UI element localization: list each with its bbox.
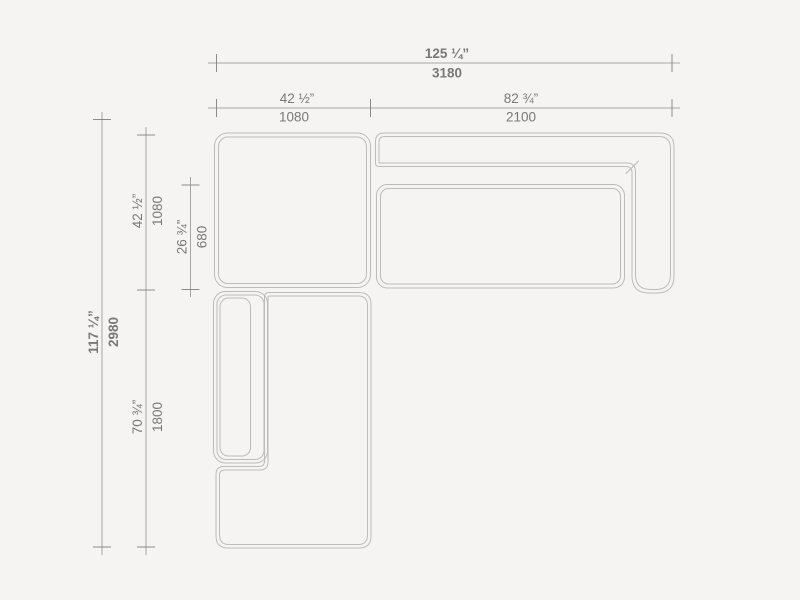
dim-seat-depth-inches: 26 ¾” [175,220,190,255]
dim-left-module-depth-inches: 42 ½” [130,194,145,229]
dim-module-widths: 42 ½” 1080 82 ¾” 2100 [208,91,680,125]
dim-left-module-depth-mm: 1080 [150,196,165,226]
dim-chaise-length-inches: 70 ¾” [130,400,145,435]
chaise-armrest-cushion [220,298,251,456]
left-module [215,133,371,288]
dim-overall-width-mm: 3180 [432,66,462,81]
chaise-module [214,292,372,549]
chaise-body-inner-outline [220,296,368,545]
sofa-plan-svg: 125 ¼” 3180 42 ½” 1080 82 ¾” 2100 117 ¼”… [0,0,800,600]
dim-right-module-width-mm: 2100 [506,110,536,125]
dim-right-module-width-inches: 82 ¾” [504,91,539,106]
dim-left-module-width-inches: 42 ½” [280,91,315,106]
right-module-seat-cushion-inner [381,189,621,285]
chaise-body-outer-outline [216,293,371,549]
dim-overall-depth-mm: 2980 [106,317,121,347]
dim-overall-width: 125 ¼” 3180 [208,46,680,81]
right-module-backrest-arm-outer-outline [376,133,675,293]
right-module-backrest-arm-inner-outline [379,137,671,290]
dim-seat-depth-mm: 680 [195,226,210,249]
left-module-outer-outline [215,133,371,288]
chaise-armrest-inner-outline [217,295,264,460]
dim-overall-depth-inches: 117 ¼” [86,310,101,354]
dim-seat-depth: 26 ¾” 680 [175,177,210,297]
right-module [376,133,675,293]
dim-chaise-length-mm: 1800 [150,402,165,432]
dim-module-depths: 42 ½” 1080 70 ¾” 1800 [130,127,165,555]
chaise-armrest-outer-outline [214,292,268,464]
dim-left-module-width-mm: 1080 [279,110,309,125]
dim-overall-depth: 117 ¼” 2980 [86,112,121,555]
right-module-seat-cushion-outer [377,185,625,289]
left-module-inner-outline [219,137,367,284]
dim-overall-width-inches: 125 ¼” [425,46,469,61]
dimension-drawing-canvas: 125 ¼” 3180 42 ½” 1080 82 ¾” 2100 117 ¼”… [0,0,800,600]
